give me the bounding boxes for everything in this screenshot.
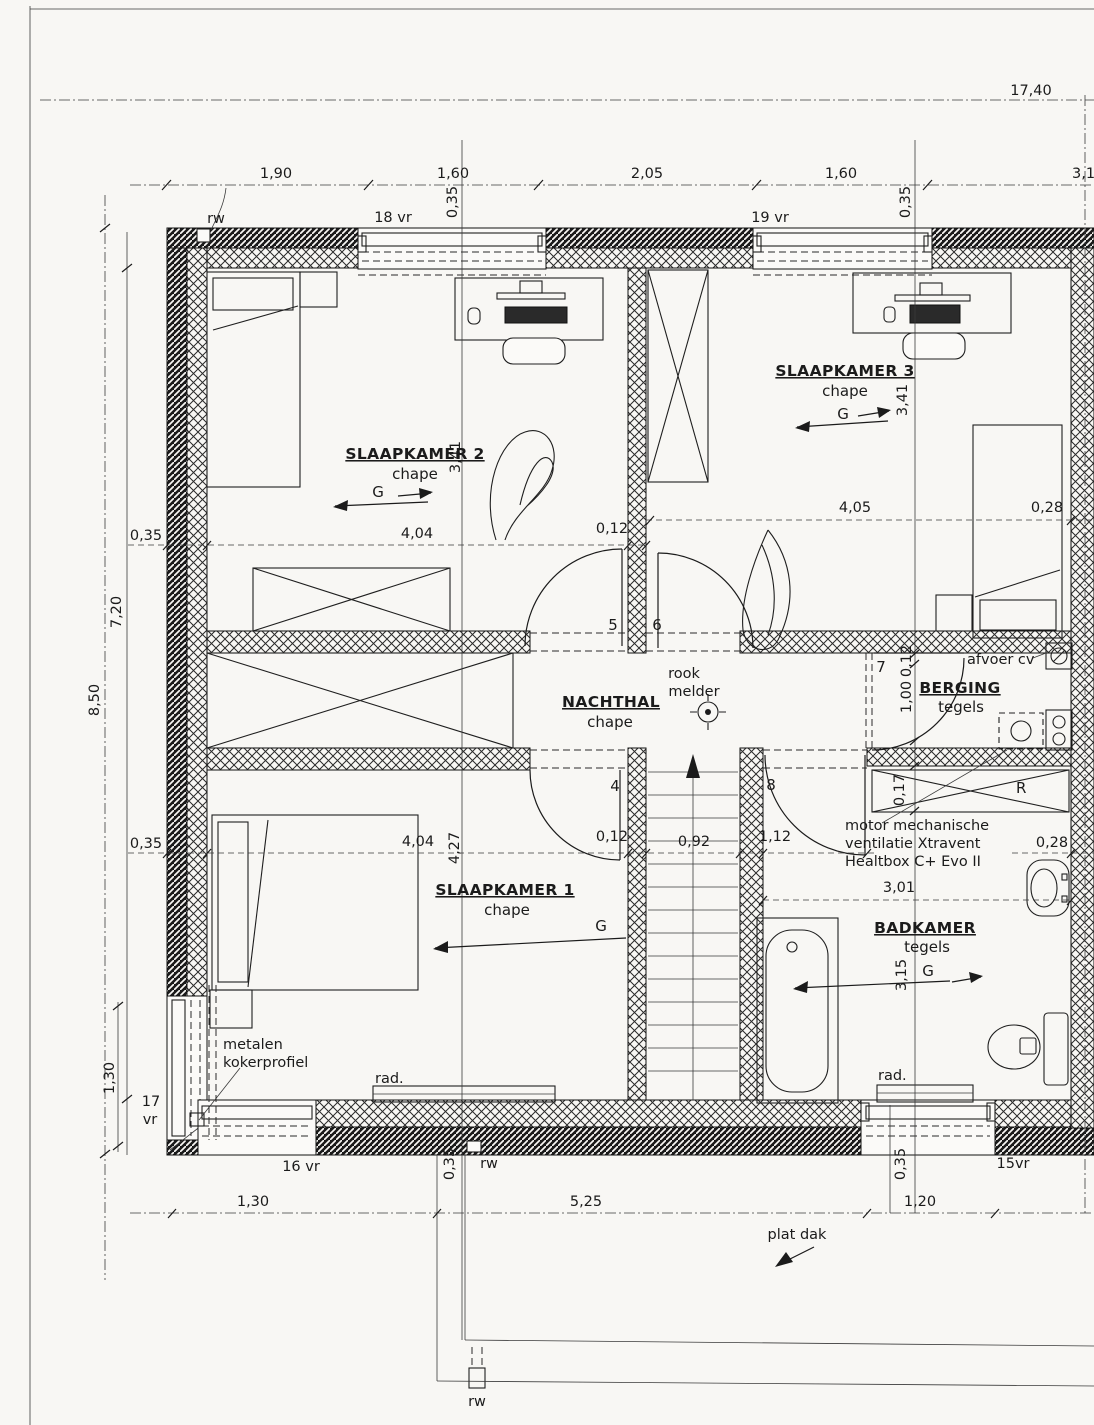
dim-berging-door: 1,00 [899, 681, 915, 713]
rw-label-top: rw [207, 211, 225, 227]
wall-top-outer [167, 228, 1094, 248]
radiators: rad. rad. [373, 1068, 973, 1102]
afvoer-cv-label: afvoer cv [967, 652, 1035, 668]
door-4-arc [530, 770, 620, 860]
stairs-up-arrow [686, 754, 700, 778]
dim-slk3-028: 0,28 [1031, 500, 1063, 516]
rw-pipe-bottom [467, 1141, 481, 1152]
door-6-arc [658, 553, 753, 648]
dim-top-3: 2,05 [631, 166, 663, 182]
window-19vr [753, 228, 932, 275]
room-label-badkamer: BADKAMER [874, 919, 976, 937]
desk-slk2 [455, 278, 603, 364]
staircase [648, 754, 738, 1100]
annotation-labels: rook melder afvoer cv motor mechanische … [207, 211, 1046, 1410]
g-label-badkamer: G [922, 962, 934, 980]
dim-bottom-120: 1,20 [904, 1194, 936, 1210]
dim-top-2: 1,60 [437, 166, 469, 182]
room-floor-slk2: chape [392, 465, 438, 483]
r-label: R [1016, 779, 1026, 797]
floor-plan-drawing: 5 6 4 8 7 [0, 0, 1094, 1425]
dim-bottom-wall-a: 0,35 [442, 1148, 458, 1180]
rook-melder-line1: rook [668, 666, 700, 682]
dim-top-1: 1,90 [260, 166, 292, 182]
dim-top-5: 3,1 [1072, 166, 1094, 182]
dim-wall-012a: 0,12 [596, 521, 628, 537]
g-arrow-slk2: G [333, 483, 433, 511]
dim-slk3-depth: 3,41 [895, 384, 911, 416]
sink [1027, 860, 1069, 916]
room-label-berging: BERGING [919, 679, 1000, 697]
plat-dak-label: plat dak [768, 1227, 828, 1243]
dim-bottom-525: 5,25 [570, 1194, 602, 1210]
dim-slk1-depth: 4,27 [447, 832, 463, 864]
dim-028b: 0,28 [1036, 835, 1068, 851]
window-label-16vr: 16 vr [282, 1159, 320, 1175]
motor-line2: ventilatie Xtravent [845, 836, 981, 852]
wardrobe-slk3 [648, 270, 708, 482]
room-label-nachthal: NACHTHAL [562, 693, 660, 711]
window-label-17a: 17 [142, 1094, 160, 1110]
g-arrow-badkamer: G [793, 962, 983, 993]
bathtub [757, 918, 838, 1103]
dim-bottom-wall-b: 0,35 [893, 1148, 909, 1180]
motor-line3: Healtbox C+ Evo II [845, 854, 981, 870]
bed-slk2 [207, 272, 300, 487]
dim-left-130: 1,30 [102, 1062, 118, 1094]
radiator-badkamer [877, 1085, 973, 1102]
door-number-7: 7 [876, 658, 886, 676]
rad-label-badkamer: rad. [878, 1068, 907, 1084]
window-label-18vr: 18 vr [374, 210, 412, 226]
bed-slk3 [973, 425, 1062, 638]
dim-slk3-width: 4,05 [839, 500, 871, 516]
room-label-slk3: SLAAPKAMER 3 [775, 362, 914, 380]
dim-wall-a: 0,35 [130, 528, 162, 544]
dim-berging-012: 0,12 [899, 645, 915, 677]
dim-112: 1,12 [759, 829, 791, 845]
room-label-slk2: SLAAPKAMER 2 [345, 445, 484, 463]
dim-left-total: 8,50 [87, 684, 103, 716]
rw-label-roof: rw [468, 1394, 486, 1410]
dim-win19-wall: 0,35 [898, 186, 914, 218]
dim-top-4: 1,60 [825, 166, 857, 182]
nightstand-slk2 [300, 272, 337, 307]
boiler [1046, 710, 1072, 750]
dim-left-inner: 7,20 [109, 596, 125, 628]
rw-label-mid: rw [480, 1156, 498, 1172]
wall-badkamer-north [867, 748, 1071, 766]
g-arrow-slk3: G [795, 405, 891, 432]
window-label-17b: vr [143, 1112, 158, 1128]
door-number-6: 6 [652, 616, 662, 634]
bed-slk1 [212, 815, 418, 990]
plant-doodle-slk2 [490, 431, 554, 540]
window-label-15vr: 15vr [997, 1156, 1030, 1172]
closet-slk2 [253, 568, 450, 631]
room-floor-berging: tegels [938, 698, 984, 716]
dim-bottom-130: 1,30 [237, 1194, 269, 1210]
door-number-5: 5 [608, 616, 618, 634]
metalen-line2: kokerprofiel [223, 1055, 308, 1071]
washing-machine-dashed [999, 713, 1043, 749]
window-18vr [358, 228, 546, 275]
room-floor-badkamer: tegels [904, 938, 950, 956]
wall-slk2-south [207, 631, 530, 653]
wall-slk1-north [207, 748, 530, 770]
dim-slk1-width: 4,04 [402, 834, 434, 850]
dim-wall-012b: 0,12 [596, 829, 628, 845]
dim-win18-wall: 0,35 [445, 186, 461, 218]
wall-stair-right [740, 748, 763, 1100]
dim-badkamer-depth: 3,15 [894, 959, 910, 991]
dim-total-width: 17,40 [1010, 83, 1052, 99]
motor-line1: motor mechanische [845, 818, 989, 834]
desk-slk3 [853, 273, 1011, 359]
rw-pipe-roof [469, 1347, 485, 1388]
room-floor-nachthal: chape [587, 713, 633, 731]
toilet [988, 1013, 1068, 1085]
dim-stair-width: 0,92 [678, 834, 710, 850]
wall-top-inner [167, 248, 1094, 268]
dim-slk2-width: 4,04 [401, 526, 433, 542]
wall-slk3-divider [628, 268, 646, 653]
wall-stair-left [628, 748, 646, 1100]
door-number-4: 4 [610, 777, 620, 795]
wall-right-inner [1071, 248, 1094, 1128]
dim-badkamer-width: 3,01 [883, 880, 915, 896]
nightstand-slk3 [936, 595, 972, 631]
floor-plan-page: 5 6 4 8 7 [0, 0, 1094, 1425]
flat-roof-outline [437, 1155, 1094, 1386]
door-number-8: 8 [766, 776, 776, 794]
g-label-slk3: G [837, 405, 849, 423]
g-label-slk2: G [372, 483, 384, 501]
dim-017: 0,17 [892, 774, 908, 806]
metalen-line1: metalen [223, 1037, 283, 1053]
rw-pipe-top [197, 229, 210, 242]
room-floor-slk1: chape [484, 901, 530, 919]
rad-label-slk1: rad. [375, 1071, 404, 1087]
room-floor-slk3: chape [822, 382, 868, 400]
room-label-slk1: SLAAPKAMER 1 [435, 881, 574, 899]
window-label-19vr: 19 vr [751, 210, 789, 226]
dim-wall-b: 0,35 [130, 836, 162, 852]
rook-melder-line2: melder [668, 684, 719, 700]
window-15vr [861, 1100, 995, 1155]
bathroom-fixtures [757, 860, 1069, 1103]
closet-slk1 [207, 653, 513, 748]
g-label-slk1: G [595, 917, 607, 935]
